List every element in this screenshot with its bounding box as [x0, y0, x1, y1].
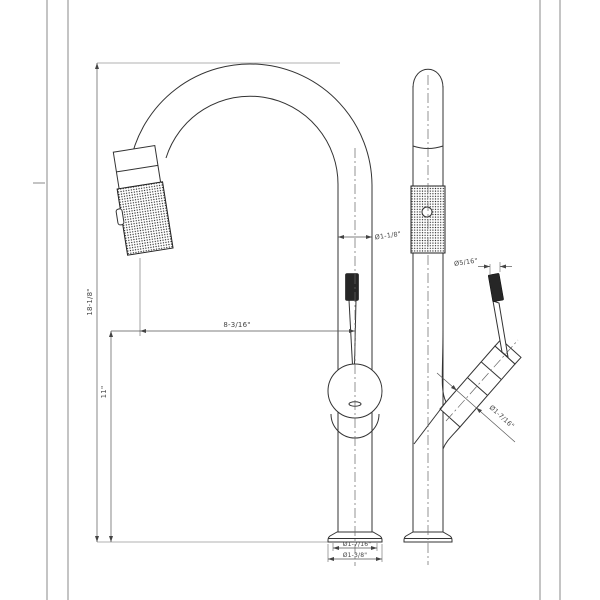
dim-spout-reach-label: 8-3/16"	[223, 321, 250, 329]
side-view	[404, 69, 521, 565]
dim-lever-tip-label: Ø5/16"	[453, 257, 478, 268]
dim-arrow-handle-upper	[437, 373, 457, 391]
dimension-annotations: 18-1/8" 11" 8-3/16" Ø1-1/8" Ø1-7/16"	[86, 63, 516, 562]
lever-grip-front	[346, 274, 359, 301]
dim-base-lower-label: Ø1-3/8"	[343, 552, 368, 559]
spray-head	[107, 145, 173, 256]
dim-lever-tip: Ø5/16"	[453, 257, 512, 274]
spout-inner-arc	[166, 96, 338, 185]
dim-height-to-spout: 11"	[100, 331, 111, 542]
crotch-inner-line	[414, 402, 446, 444]
lower-crotch-curve	[443, 427, 460, 449]
front-view	[107, 64, 382, 566]
dim-spout-reach: 8-3/16"	[111, 321, 355, 331]
drawing-sheet: 18-1/8" 11" 8-3/16" Ø1-1/8" Ø1-7/16"	[0, 0, 600, 600]
upper-crotch-curve	[442, 330, 446, 402]
dim-overall-height: 18-1/8"	[86, 63, 97, 542]
dim-overall-height-label: 18-1/8"	[86, 288, 94, 315]
dim-height-to-spout-label: 11"	[100, 386, 108, 399]
dim-spout-tube-label: Ø1-1/8"	[374, 230, 401, 242]
spray-knurl-grip	[117, 182, 173, 255]
sheet-border-lines	[33, 0, 560, 600]
side-spray-button	[422, 207, 432, 217]
lever-grip-side	[488, 273, 504, 301]
faucet-dimension-drawing: 18-1/8" 11" 8-3/16" Ø1-1/8" Ø1-7/16"	[0, 0, 600, 600]
lever-rod-left-line	[349, 300, 353, 365]
lever-grip-side-group	[488, 273, 504, 301]
dim-handle-diameter-label: Ø1-7/16"	[488, 404, 516, 431]
spout-outer-arc	[130, 64, 372, 185]
dim-base-upper-label: Ø1-7/16"	[343, 541, 372, 548]
dim-spout-tube-diameter: Ø1-1/8"	[338, 230, 401, 242]
